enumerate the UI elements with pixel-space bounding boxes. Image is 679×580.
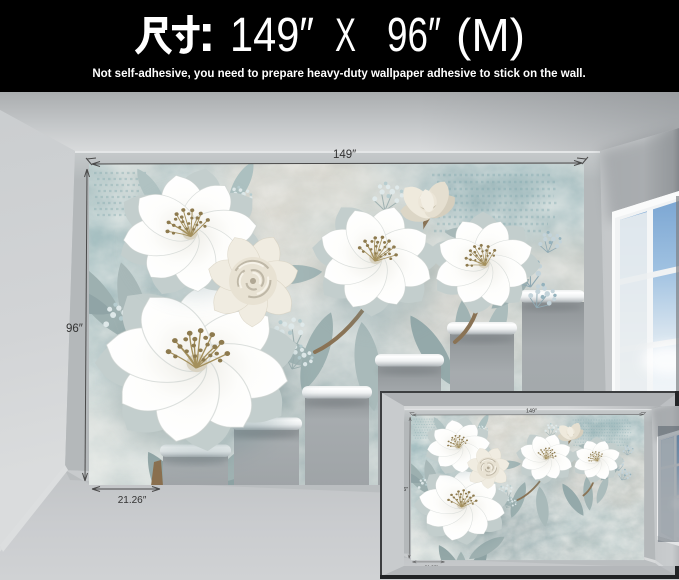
svg-text:Not self-adhesive, you need to: Not self-adhesive, you need to prepare h…: [92, 68, 585, 80]
svg-text:149″: 149″: [230, 9, 314, 62]
svg-text:96″: 96″: [387, 9, 441, 62]
svg-text:X: X: [335, 8, 356, 61]
svg-text:(M): (M): [456, 9, 525, 61]
